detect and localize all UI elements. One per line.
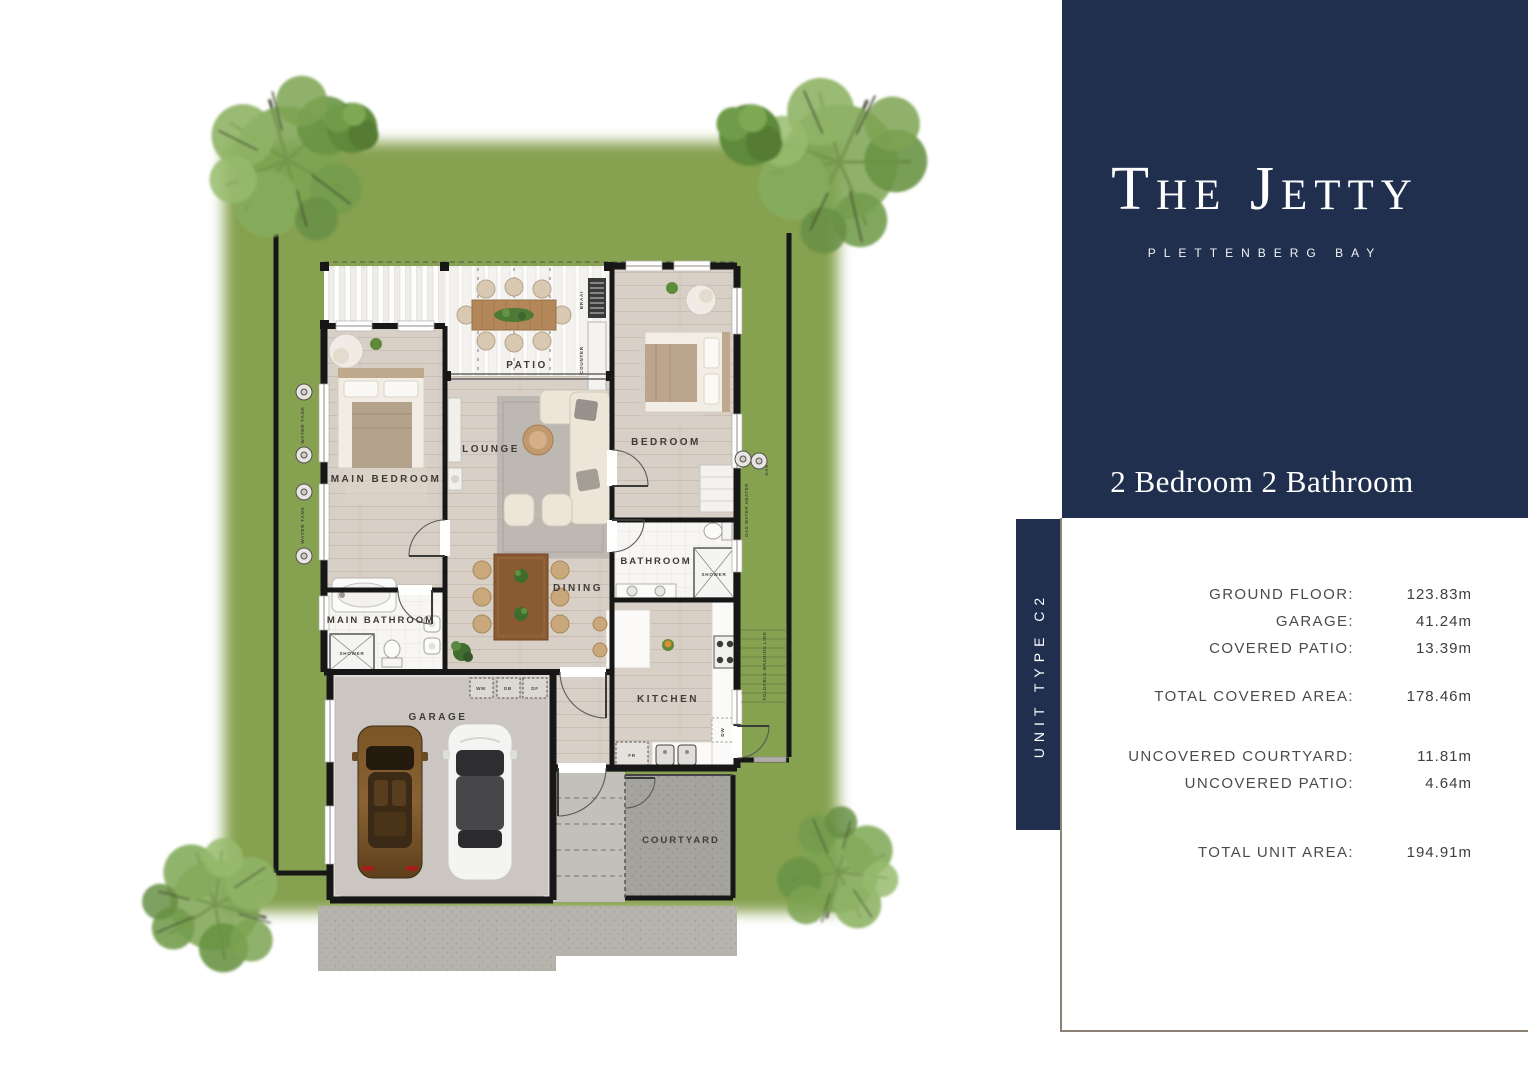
area-row-ground-floor: GROUND FLOOR: 123.83m xyxy=(1098,586,1472,603)
label-gas-water-heater: GAS WATER HEATER xyxy=(744,483,749,537)
braai xyxy=(588,278,606,318)
label-braai: BRAAI xyxy=(579,291,584,309)
brand-title: The Jetty xyxy=(1062,158,1468,220)
area-value: 194.91m xyxy=(1354,844,1472,861)
gate xyxy=(752,755,788,765)
brand-block: The Jetty PLETTENBERG BAY xyxy=(1062,158,1468,260)
area-label: GROUND FLOOR: xyxy=(1098,586,1354,603)
area-row-garage: GARAGE: 41.24m xyxy=(1098,613,1472,630)
label-counter: COUNTER xyxy=(579,346,584,374)
area-label: TOTAL COVERED AREA: xyxy=(1098,688,1354,705)
area-label: UNCOVERED COURTYARD: xyxy=(1098,748,1354,765)
label-lounge: LOUNGE xyxy=(462,444,520,455)
label-kitchen: KITCHEN xyxy=(637,694,699,705)
area-value: 41.24m xyxy=(1354,613,1472,630)
white-car xyxy=(443,724,517,880)
label-df: DF xyxy=(531,686,539,691)
area-label: COVERED PATIO: xyxy=(1098,640,1354,657)
area-value: 123.83m xyxy=(1354,586,1472,603)
label-dining: DINING xyxy=(553,583,603,594)
label-db: DB xyxy=(504,686,512,691)
label-water-tank-b: WATER TANK xyxy=(300,506,305,543)
label-bathroom: BATHROOM xyxy=(620,556,691,567)
area-label: GARAGE: xyxy=(1098,613,1354,630)
page: PATIO MAIN BEDROOM LOUNGE BEDROOM MAIN B… xyxy=(0,0,1528,1080)
patio-counter xyxy=(588,322,606,392)
label-shower: SHOWER xyxy=(701,572,726,577)
pergola xyxy=(324,266,445,326)
label-gas: GAS xyxy=(764,464,769,475)
label-bedroom: BEDROOM xyxy=(631,437,701,448)
area-label: TOTAL UNIT AREA: xyxy=(1098,844,1354,861)
suv-car xyxy=(352,726,428,878)
dining-set xyxy=(473,554,569,640)
label-main-bedroom: MAIN BEDROOM xyxy=(331,474,442,485)
label-patio: PATIO xyxy=(506,360,548,371)
label-garage: GARAGE xyxy=(409,712,468,723)
unit-type-label: UNIT TYPE C2 xyxy=(1031,591,1047,757)
label-fr: FR xyxy=(628,753,636,758)
label-courtyard: COURTYARD xyxy=(642,835,720,846)
area-row-uncovered-courtyard: UNCOVERED COURTYARD: 11.81m xyxy=(1098,748,1472,765)
area-label: UNCOVERED PATIO: xyxy=(1098,775,1354,792)
area-value: 11.81m xyxy=(1354,748,1472,765)
label-water-tank-a: WATER TANK xyxy=(300,406,305,443)
brand-panel: The Jetty PLETTENBERG BAY 2 Bedroom 2 Ba… xyxy=(1062,0,1528,518)
area-value: 4.64m xyxy=(1354,775,1472,792)
unit-type-bar: UNIT TYPE C2 xyxy=(1016,519,1062,830)
area-value: 178.46m xyxy=(1354,688,1472,705)
brand-location: PLETTENBERG BAY xyxy=(1062,246,1468,260)
area-row-covered-patio: COVERED PATIO: 13.39m xyxy=(1098,640,1472,657)
entry-steps xyxy=(553,772,625,902)
label-wm: WM xyxy=(476,686,486,691)
area-row-total-unit: TOTAL UNIT AREA: 194.91m xyxy=(1098,844,1472,861)
label-main-bathroom: MAIN BATHROOM xyxy=(327,615,435,626)
label-shower-main: SHOWER xyxy=(339,651,364,656)
unit-heading: 2 Bedroom 2 Bathroom xyxy=(1062,464,1462,500)
floor-plan: PATIO MAIN BEDROOM LOUNGE BEDROOM MAIN B… xyxy=(0,0,1016,1080)
label-dw: DW xyxy=(720,727,725,736)
area-value: 13.39m xyxy=(1354,640,1472,657)
area-row-uncovered-patio: UNCOVERED PATIO: 4.64m xyxy=(1098,775,1472,792)
area-row-total-covered: TOTAL COVERED AREA: 178.46m xyxy=(1098,688,1472,705)
label-washing-line: FOLDABLE WASHING LINE xyxy=(762,632,767,701)
